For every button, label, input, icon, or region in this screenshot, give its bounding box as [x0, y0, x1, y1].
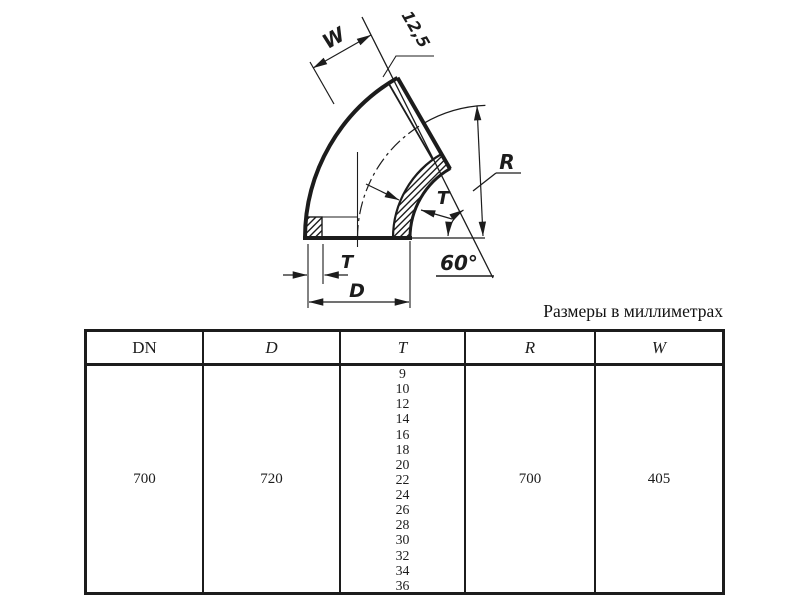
angle-label: 60°: [440, 251, 478, 275]
t-wall-label: T: [437, 188, 451, 209]
t-value: 16: [396, 427, 410, 442]
centerline-arc-extension: [424, 105, 486, 123]
r-dimension-line: [477, 106, 483, 236]
r-label: R: [499, 150, 514, 174]
t-value: 24: [396, 487, 410, 502]
t-value: 36: [396, 578, 410, 593]
left-wall-section-hatched: [306, 217, 322, 238]
t-value: 18: [396, 442, 410, 457]
t-value: 9: [399, 366, 406, 381]
t-wall-arrow-right: [421, 210, 452, 219]
dimension-chamfer: 12,5: [383, 7, 434, 77]
col-header-dn: DN: [87, 332, 204, 363]
table-header-row: DN D T R W: [87, 332, 722, 366]
units-note: Размеры в миллиметрах: [543, 301, 723, 322]
t-value: 20: [396, 457, 410, 472]
t-value: 32: [396, 548, 410, 563]
col-header-r: R: [466, 332, 596, 363]
t-value: 34: [396, 563, 410, 578]
dimension-w: W: [310, 22, 371, 104]
dimension-d: D: [309, 241, 410, 308]
t-value: 10: [396, 381, 410, 396]
cell-dn: 700: [87, 366, 204, 593]
cell-t-values: 9 10 12 14 16 18 20 22 24 26 28 30 32 34…: [341, 366, 466, 593]
cell-d: 720: [204, 366, 341, 593]
cell-w: 405: [596, 366, 722, 593]
t-value: 22: [396, 472, 410, 487]
dimension-angle: 60°: [410, 210, 494, 276]
table-data-row: 700 720 9 10 12 14 16 18 20 22 24 26 28 …: [87, 366, 722, 593]
col-header-d: D: [204, 332, 341, 363]
chamfer-label: 12,5: [398, 7, 434, 51]
dimension-r: R: [473, 106, 521, 236]
cell-r: 700: [466, 366, 596, 593]
r-leader: [473, 173, 496, 191]
col-header-t: T: [341, 332, 466, 363]
t-value: 12: [396, 396, 410, 411]
dimensions-table: DN D T R W 700 720 9 10 12 14 16 18 20 2…: [84, 329, 725, 595]
t-wall-arrow-left: [366, 184, 399, 200]
dimension-t-bottom: T: [283, 244, 355, 308]
t-value: 28: [396, 517, 410, 532]
elbow-technical-drawing: W 12,5 R T 60°: [0, 0, 800, 330]
t-value: 26: [396, 502, 410, 517]
outer-arc: [305, 78, 398, 238]
t-value: 14: [396, 411, 410, 426]
t-bottom-label: T: [341, 252, 355, 273]
w-label: W: [318, 22, 350, 54]
standard-page: W 12,5 R T 60°: [0, 0, 800, 600]
t-value: 30: [396, 532, 410, 547]
col-header-w: W: [596, 332, 722, 363]
d-label: D: [349, 280, 365, 302]
